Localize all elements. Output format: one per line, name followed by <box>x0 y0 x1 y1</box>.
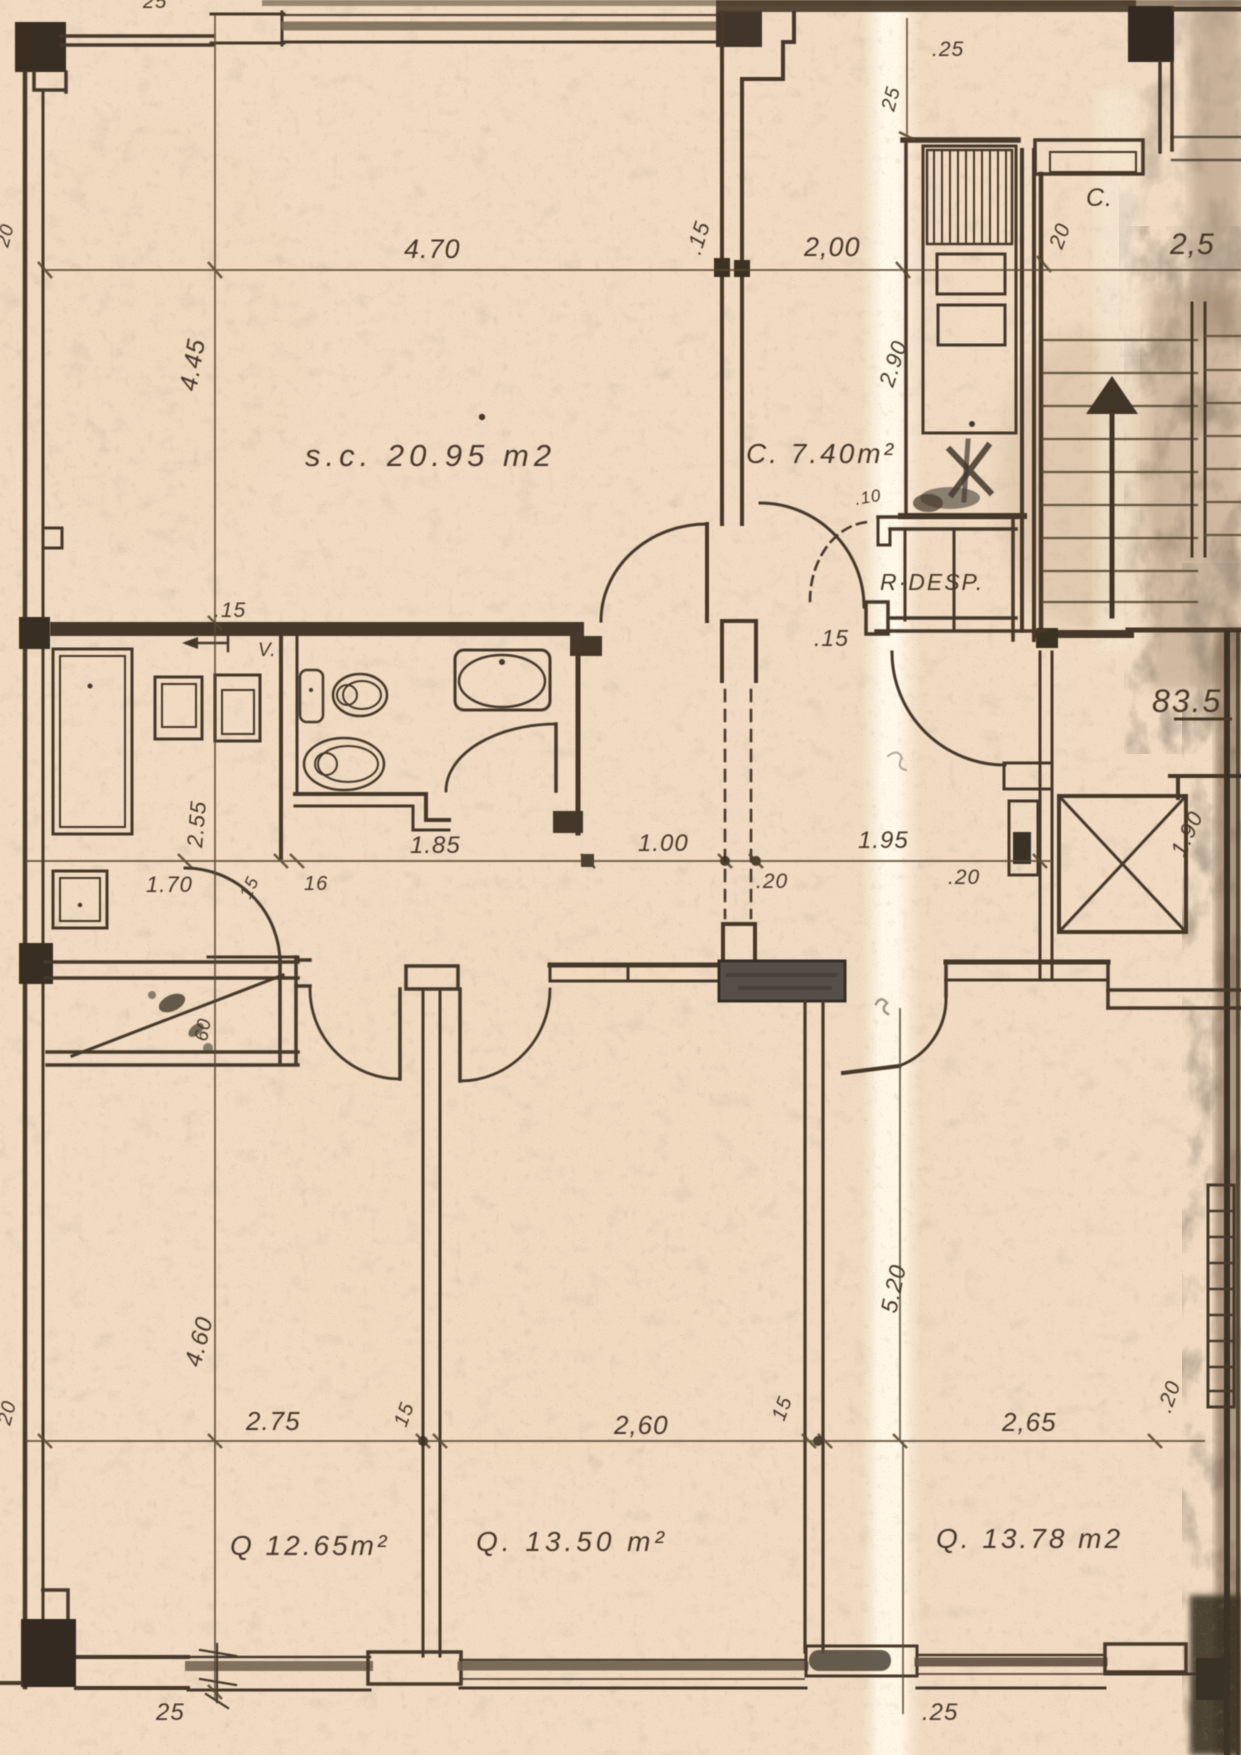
svg-text:Q. 13.50 m²: Q. 13.50 m² <box>476 1526 668 1557</box>
svg-text:25: 25 <box>155 1699 185 1726</box>
svg-text:.15: .15 <box>214 599 246 622</box>
svg-text:83.5: 83.5 <box>1152 683 1222 719</box>
svg-text:2,00: 2,00 <box>803 232 861 262</box>
svg-text:16: 16 <box>304 873 328 895</box>
svg-text:2.55: 2.55 <box>182 800 211 850</box>
svg-text:2.75: 2.75 <box>245 1406 301 1436</box>
svg-text:V.: V. <box>258 640 277 661</box>
svg-text:60: 60 <box>191 1016 216 1042</box>
svg-text:s.c. 20.95 m2: s.c. 20.95 m2 <box>305 438 556 473</box>
svg-text:.25: .25 <box>922 1699 958 1726</box>
svg-text:R·DESP.: R·DESP. <box>880 569 984 595</box>
svg-text:C.: C. <box>1086 184 1113 212</box>
svg-text:.20: .20 <box>948 866 980 889</box>
svg-text:Q 12.65m²: Q 12.65m² <box>230 1530 389 1561</box>
svg-text:1.85: 1.85 <box>410 832 461 859</box>
svg-text:25: 25 <box>142 0 167 13</box>
svg-text:4.70: 4.70 <box>404 234 461 264</box>
svg-text:1.00: 1.00 <box>638 830 689 857</box>
svg-text:1.95: 1.95 <box>858 827 909 854</box>
svg-text:1.70: 1.70 <box>146 872 193 897</box>
svg-text:.20: .20 <box>756 870 788 893</box>
svg-text:Q. 13.78 m2: Q. 13.78 m2 <box>936 1523 1123 1554</box>
svg-text:2,60: 2,60 <box>613 1410 669 1440</box>
svg-text:2,65: 2,65 <box>1001 1407 1057 1437</box>
svg-text:C. 7.40m²: C. 7.40m² <box>746 438 896 469</box>
svg-text:.25: .25 <box>932 38 964 61</box>
svg-text:.15: .15 <box>814 625 849 651</box>
svg-text:2,5: 2,5 <box>1169 228 1215 261</box>
